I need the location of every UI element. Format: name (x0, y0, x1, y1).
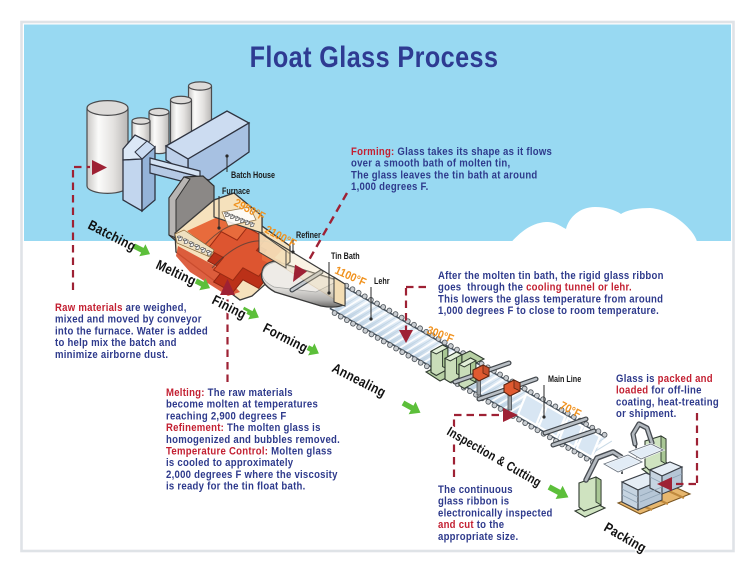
svg-text:Batch House: Batch House (231, 170, 275, 180)
svg-text:1,000 degrees F.: 1,000 degrees F. (351, 182, 429, 194)
svg-text:Lehr: Lehr (374, 276, 390, 286)
svg-text:over a smooth bath of molten t: over a smooth bath of molten tin, (351, 158, 510, 170)
svg-text:Refinement: The molten glass i: Refinement: The molten glass is (166, 423, 321, 435)
svg-text:glass ribbon is: glass ribbon is (438, 496, 509, 508)
svg-text:is cooled to approximately: is cooled to approximately (166, 458, 293, 470)
svg-text:This lowers the glass temperat: This lowers the glass temperature from a… (438, 294, 663, 306)
svg-text:Refiner: Refiner (296, 230, 321, 240)
svg-text:2,000 degrees F where the visc: 2,000 degrees F where the viscosity (166, 469, 338, 481)
svg-text:Temperature Control: Molten gl: Temperature Control: Molten glass (166, 446, 332, 458)
svg-text:into the furnace. Water is add: into the furnace. Water is added (55, 326, 208, 338)
svg-text:Melting: The raw materials: Melting: The raw materials (166, 387, 293, 399)
svg-text:1,000 degrees F to close to ro: 1,000 degrees F to close to room tempera… (438, 306, 659, 318)
svg-text:reaching 2,900 degrees F: reaching 2,900 degrees F (166, 411, 286, 423)
svg-text:After the molten tin bath, the: After the molten tin bath, the rigid gla… (438, 270, 664, 282)
svg-text:and cut to the: and cut to the (438, 520, 504, 532)
svg-text:electronically inspected: electronically inspected (438, 508, 553, 520)
svg-text:The glass leaves the tin bath: The glass leaves the tin bath at around (351, 170, 538, 182)
svg-text:to help mix the batch and: to help mix the batch and (55, 338, 177, 350)
svg-text:Raw materials are weighed,: Raw materials are weighed, (55, 302, 187, 314)
svg-text:is ready for the tin float bat: is ready for the tin float bath. (166, 481, 306, 493)
svg-text:Forming: Glass takes its shape: Forming: Glass takes its shape as it flo… (351, 146, 552, 158)
svg-text:The continuous: The continuous (438, 484, 513, 496)
svg-text:Tin Bath: Tin Bath (331, 251, 360, 261)
svg-text:coating, heat-treating: coating, heat-treating (616, 397, 719, 409)
svg-text:Float Glass Process: Float Glass Process (250, 40, 499, 74)
svg-text:loaded for off-line: loaded for off-line (616, 385, 702, 397)
svg-text:Main Line: Main Line (548, 374, 582, 384)
svg-text:goes through the cooling tunn: goes through the cooling tunnel or lehr. (438, 282, 632, 294)
svg-text:mixed and moved by conveyor: mixed and moved by conveyor (55, 314, 202, 326)
svg-text:homogenized and bubbles remove: homogenized and bubbles removed. (166, 434, 340, 446)
svg-text:become molten at temperatures: become molten at temperatures (166, 399, 318, 411)
svg-text:Glass is packed and: Glass is packed and (616, 373, 713, 385)
svg-text:minimize airborne dust.: minimize airborne dust. (55, 349, 168, 361)
svg-text:or shipment.: or shipment. (616, 409, 676, 421)
svg-text:appropriate size.: appropriate size. (438, 531, 518, 543)
svg-text:Furnace: Furnace (222, 186, 250, 196)
